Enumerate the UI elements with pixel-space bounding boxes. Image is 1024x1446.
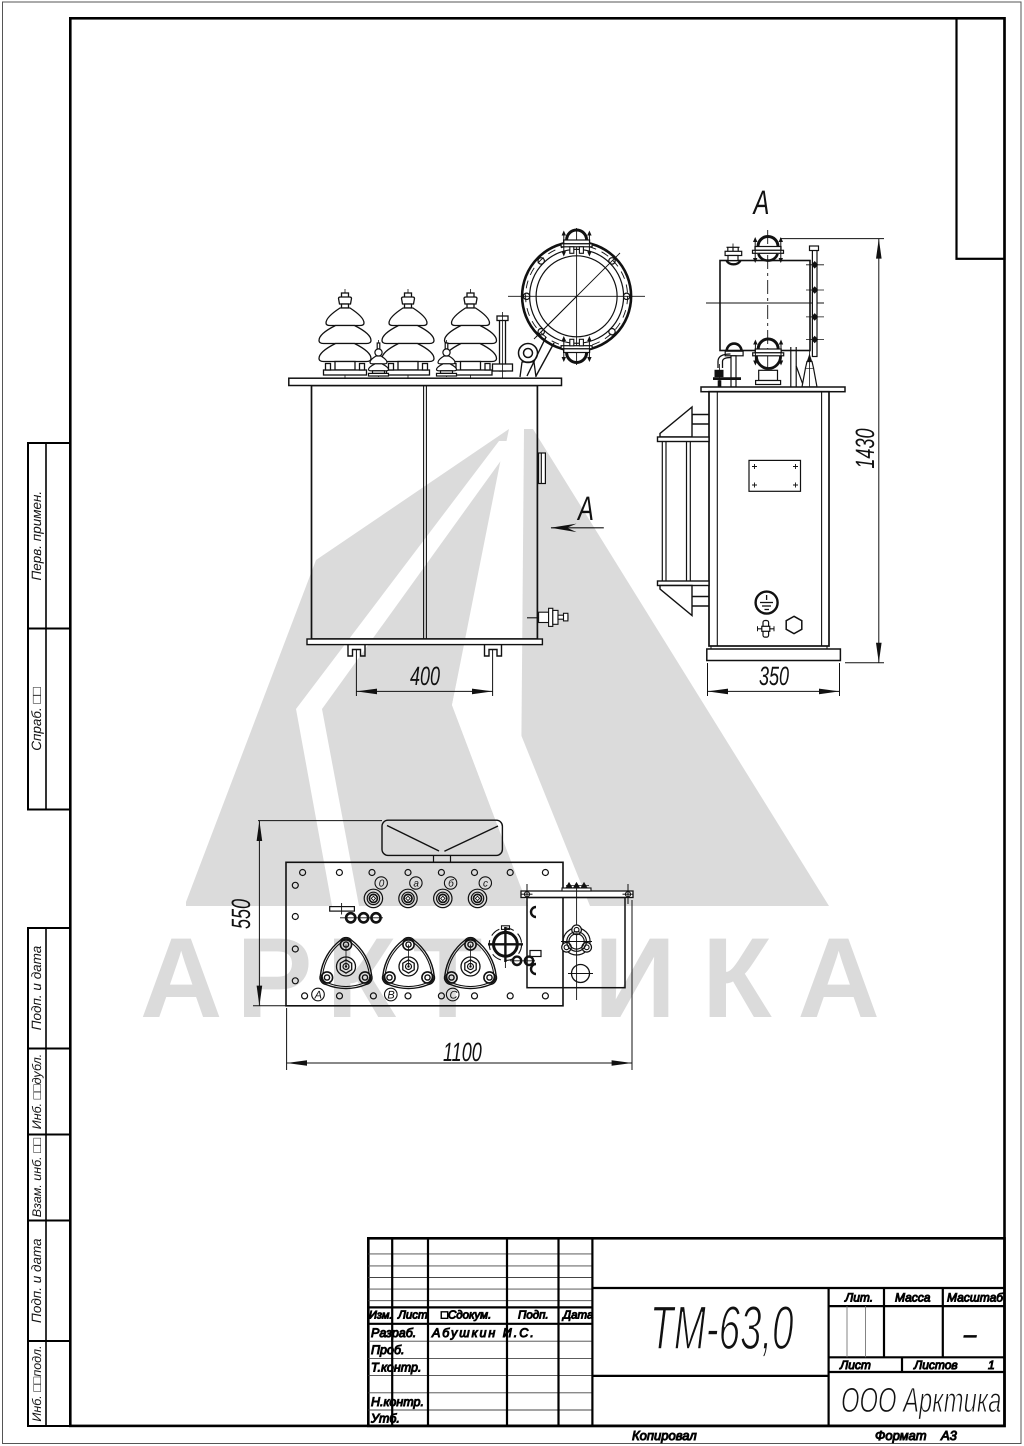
svg-text:А: А (752, 184, 769, 222)
svg-text:В: В (387, 989, 394, 1001)
svg-text:ООО Арктика: ООО Арктика (841, 1381, 1001, 1420)
svg-text:Лист: Лист (839, 1358, 871, 1372)
svg-text:А: А (577, 490, 594, 528)
svg-text:Взам. инб. □□: Взам. инб. □□ (30, 1137, 44, 1217)
svg-text:Спраб. □□: Спраб. □□ (29, 686, 44, 750)
svg-text:ИКА: ИКА (594, 915, 906, 1042)
svg-text:350: 350 (759, 661, 789, 691)
svg-text:Подп.: Подп. (518, 1310, 549, 1322)
svg-text:С: С (450, 989, 458, 1001)
svg-text:Дата: Дата (561, 1310, 593, 1322)
svg-text:Листов: Листов (913, 1358, 958, 1372)
svg-text:Подп. и дата: Подп. и дата (29, 945, 44, 1030)
svg-text:Утб.: Утб. (370, 1412, 400, 1426)
svg-text:Формат: Формат (875, 1428, 927, 1443)
svg-text:АРКТ: АРКТ (140, 915, 496, 1042)
svg-text:Изм.: Изм. (369, 1310, 392, 1322)
svg-text:Проб.: Проб. (371, 1343, 404, 1357)
svg-text:□Сдокум.: □Сдокум. (441, 1310, 491, 1322)
svg-text:550: 550 (226, 899, 256, 929)
svg-text:А3: А3 (940, 1428, 958, 1443)
svg-text:Подп. и дата: Подп. и дата (29, 1238, 44, 1323)
svg-text:Лист: Лист (397, 1310, 428, 1322)
svg-text:А: А (314, 989, 322, 1001)
svg-text:400: 400 (410, 661, 440, 691)
svg-text:0: 0 (379, 879, 385, 890)
svg-text:1430: 1430 (850, 428, 880, 468)
svg-text:Перв. примен.: Перв. примен. (29, 491, 44, 581)
svg-text:Абушкин И.С.: Абушкин И.С. (431, 1326, 536, 1340)
svg-text:1: 1 (988, 1358, 995, 1372)
svg-text:Копировал: Копировал (632, 1428, 697, 1443)
svg-text:Лит.: Лит. (844, 1291, 873, 1305)
svg-text:Н.контр.: Н.контр. (371, 1395, 424, 1409)
svg-text:а: а (413, 879, 419, 890)
svg-text:Т.контр.: Т.контр. (371, 1361, 421, 1375)
svg-text:Инб. □□дубл.: Инб. □□дубл. (30, 1054, 44, 1129)
svg-text:с: с (483, 879, 488, 890)
svg-text:Масса: Масса (895, 1291, 931, 1305)
svg-text:ТМ-63,0: ТМ-63,0 (650, 1294, 794, 1363)
svg-text:Инб. □□подл.: Инб. □□подл. (30, 1345, 44, 1421)
svg-text:–: – (963, 1322, 977, 1347)
svg-text:Масштаб: Масштаб (947, 1291, 1004, 1305)
svg-text:б: б (448, 879, 454, 890)
svg-text:1100: 1100 (443, 1037, 482, 1067)
svg-text:Разраб.: Разраб. (371, 1326, 416, 1340)
